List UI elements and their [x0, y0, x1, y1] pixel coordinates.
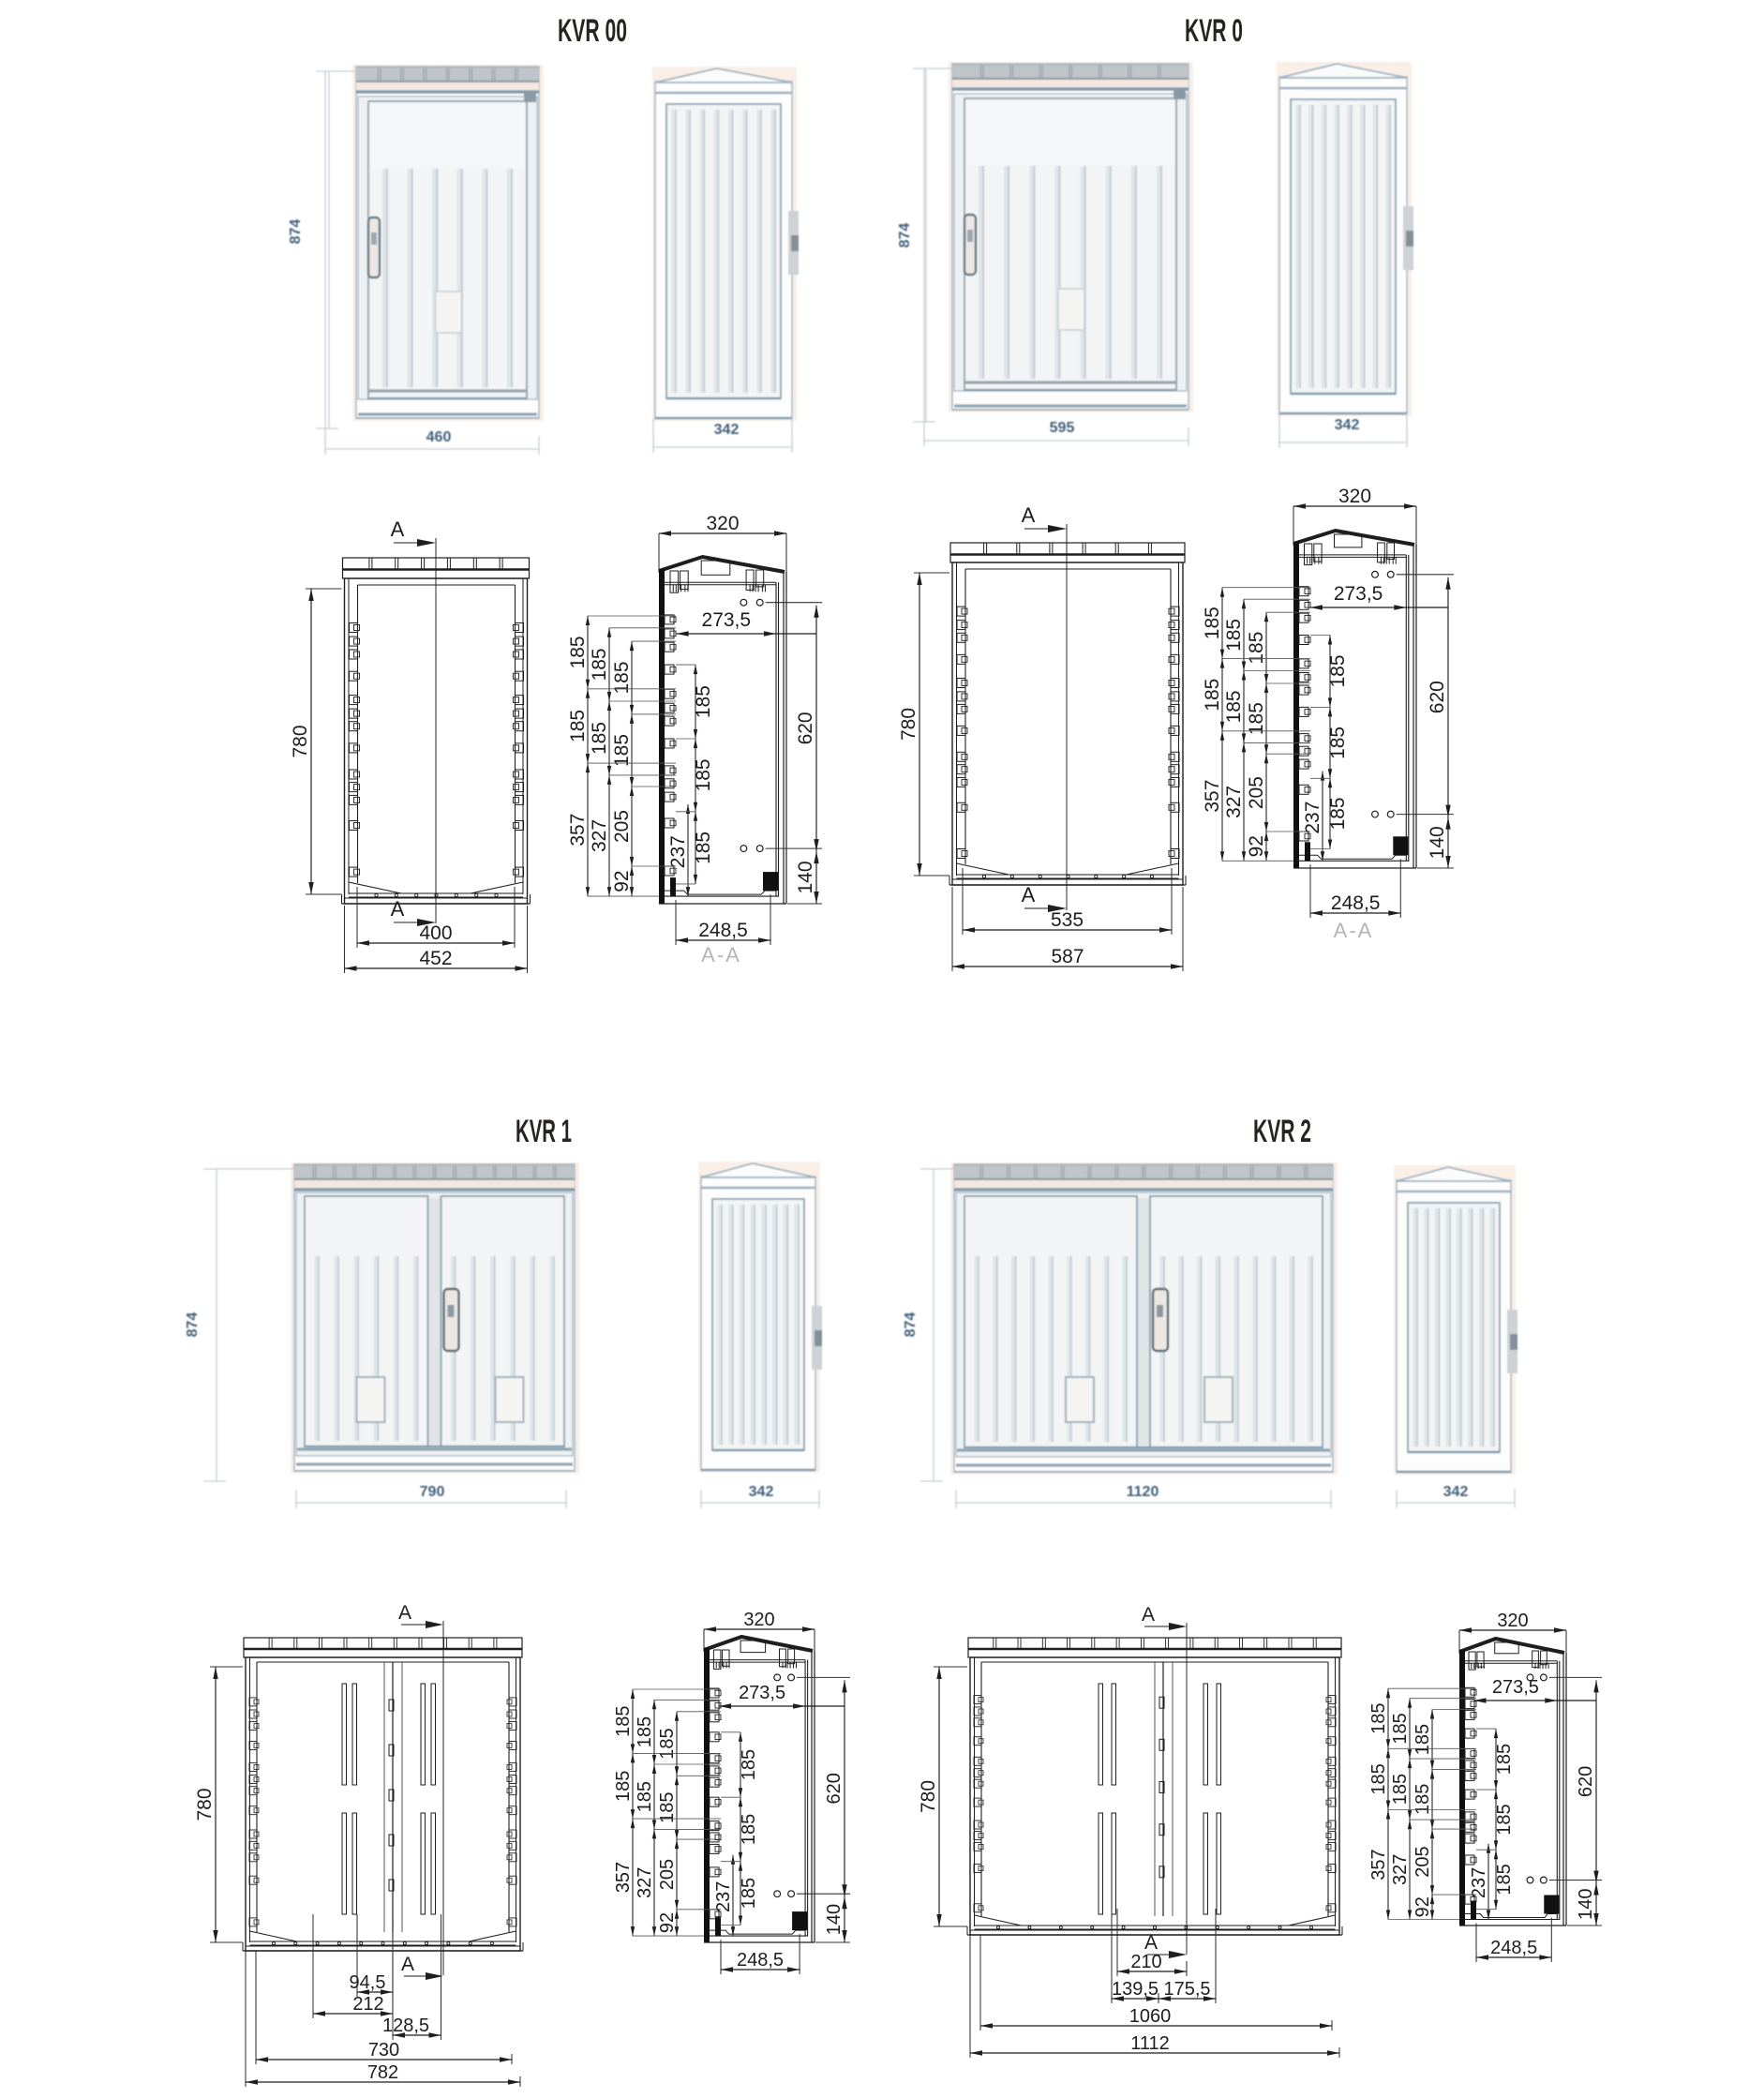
svg-text:A: A — [391, 517, 405, 541]
svg-text:185: 185 — [1494, 1744, 1515, 1775]
svg-text:185: 185 — [1327, 654, 1349, 687]
svg-text:342: 342 — [1335, 417, 1360, 433]
svg-text:730: 730 — [368, 2040, 399, 2061]
svg-text:780: 780 — [898, 708, 919, 741]
svg-text:92: 92 — [611, 870, 633, 892]
svg-text:185: 185 — [589, 648, 610, 681]
svg-text:210: 210 — [1130, 1952, 1161, 1972]
svg-text:790: 790 — [420, 1484, 445, 1500]
svg-text:248,5: 248,5 — [1331, 892, 1381, 914]
svg-text:139,5: 139,5 — [1112, 1979, 1159, 2000]
svg-text:140: 140 — [824, 1904, 845, 1935]
svg-text:874: 874 — [903, 1312, 919, 1338]
svg-text:185: 185 — [657, 1728, 678, 1759]
svg-text:874: 874 — [185, 1312, 201, 1338]
svg-text:595: 595 — [1050, 420, 1075, 436]
svg-text:400: 400 — [419, 922, 452, 944]
svg-text:185: 185 — [1390, 1713, 1411, 1744]
svg-text:205: 205 — [1246, 776, 1267, 809]
svg-text:185: 185 — [693, 685, 714, 718]
svg-text:620: 620 — [1576, 1766, 1596, 1797]
svg-text:237: 237 — [1469, 1867, 1489, 1898]
svg-text:874: 874 — [288, 219, 304, 245]
svg-text:320: 320 — [1338, 486, 1371, 507]
svg-text:273,5: 273,5 — [739, 1683, 785, 1703]
svg-text:140: 140 — [795, 861, 816, 893]
svg-text:185: 185 — [1327, 727, 1349, 759]
svg-text:320: 320 — [706, 513, 739, 534]
svg-text:237: 237 — [713, 1881, 734, 1912]
svg-text:248,5: 248,5 — [737, 1950, 784, 1971]
svg-text:185: 185 — [635, 1781, 655, 1812]
svg-text:327: 327 — [1223, 786, 1245, 818]
svg-text:185: 185 — [1368, 1703, 1389, 1734]
svg-text:185: 185 — [1246, 702, 1267, 735]
svg-text:A: A — [401, 1954, 414, 1975]
svg-text:1060: 1060 — [1129, 2006, 1172, 2027]
svg-text:92: 92 — [1413, 1896, 1433, 1917]
svg-text:185: 185 — [1202, 679, 1223, 712]
svg-text:320: 320 — [1497, 1611, 1528, 1631]
svg-text:535: 535 — [1051, 909, 1084, 931]
svg-text:273,5: 273,5 — [1334, 583, 1383, 605]
svg-text:874: 874 — [897, 223, 913, 248]
svg-text:185: 185 — [1368, 1763, 1389, 1794]
svg-text:273,5: 273,5 — [702, 609, 752, 631]
svg-text:A-A: A-A — [701, 943, 741, 967]
svg-text:342: 342 — [1443, 1484, 1469, 1500]
svg-text:140: 140 — [1427, 826, 1448, 859]
svg-text:237: 237 — [1302, 802, 1323, 834]
svg-text:273,5: 273,5 — [1492, 1677, 1539, 1698]
svg-text:185: 185 — [567, 636, 589, 668]
svg-text:342: 342 — [749, 1484, 774, 1500]
svg-text:357: 357 — [567, 814, 589, 847]
svg-text:A: A — [1022, 503, 1036, 527]
svg-text:185: 185 — [1494, 1804, 1515, 1835]
svg-text:A: A — [1022, 883, 1036, 907]
svg-text:92: 92 — [1246, 835, 1267, 857]
svg-text:237: 237 — [667, 835, 689, 868]
svg-text:185: 185 — [613, 1706, 634, 1737]
svg-text:1120: 1120 — [1127, 1484, 1159, 1500]
svg-text:205: 205 — [611, 810, 633, 843]
svg-text:620: 620 — [1427, 681, 1448, 713]
svg-text:185: 185 — [1223, 619, 1245, 652]
svg-text:342: 342 — [714, 422, 740, 438]
svg-text:185: 185 — [693, 758, 714, 791]
svg-text:587: 587 — [1051, 946, 1084, 967]
svg-text:357: 357 — [1202, 780, 1223, 813]
svg-text:128,5: 128,5 — [382, 2016, 429, 2036]
svg-text:780: 780 — [290, 725, 311, 757]
svg-text:1112: 1112 — [1130, 2033, 1170, 2054]
svg-text:185: 185 — [635, 1716, 655, 1747]
svg-text:620: 620 — [795, 712, 816, 744]
svg-text:357: 357 — [613, 1862, 634, 1893]
svg-text:KVR 1: KVR 1 — [516, 1114, 572, 1149]
svg-text:205: 205 — [657, 1859, 678, 1890]
svg-text:KVR 00: KVR 00 — [558, 13, 627, 49]
svg-text:248,5: 248,5 — [1490, 1938, 1537, 1958]
svg-text:452: 452 — [419, 948, 452, 969]
svg-text:205: 205 — [1413, 1846, 1433, 1877]
svg-text:327: 327 — [589, 819, 610, 852]
svg-text:185: 185 — [1390, 1774, 1411, 1805]
svg-text:KVR 2: KVR 2 — [1253, 1114, 1311, 1149]
svg-text:327: 327 — [635, 1867, 655, 1898]
svg-text:175,5: 175,5 — [1163, 1979, 1210, 2000]
svg-text:782: 782 — [367, 2062, 398, 2083]
svg-text:185: 185 — [613, 1771, 634, 1802]
svg-text:185: 185 — [739, 1814, 759, 1845]
svg-text:185: 185 — [1413, 1724, 1433, 1755]
svg-text:A-A: A-A — [1334, 919, 1374, 942]
svg-text:185: 185 — [589, 722, 610, 755]
svg-text:94,5: 94,5 — [350, 1972, 386, 1993]
svg-text:185: 185 — [1413, 1784, 1433, 1815]
svg-text:780: 780 — [918, 1780, 939, 1813]
svg-text:185: 185 — [1327, 797, 1349, 830]
svg-text:185: 185 — [1494, 1864, 1515, 1895]
svg-text:248,5: 248,5 — [698, 920, 748, 941]
svg-text:185: 185 — [739, 1878, 759, 1909]
svg-text:327: 327 — [1390, 1854, 1411, 1885]
svg-text:A: A — [391, 897, 405, 921]
svg-text:KVR 0: KVR 0 — [1185, 13, 1243, 49]
svg-text:92: 92 — [657, 1912, 678, 1933]
svg-text:A: A — [398, 1602, 411, 1624]
svg-text:620: 620 — [824, 1773, 845, 1804]
svg-text:780: 780 — [194, 1788, 216, 1821]
svg-text:320: 320 — [743, 1610, 774, 1630]
svg-text:A: A — [1142, 1604, 1155, 1626]
svg-text:185: 185 — [1202, 607, 1223, 639]
svg-text:140: 140 — [1576, 1889, 1596, 1920]
svg-text:212: 212 — [352, 1994, 383, 2015]
svg-text:185: 185 — [611, 661, 633, 694]
svg-text:185: 185 — [693, 832, 714, 864]
svg-text:460: 460 — [426, 429, 452, 445]
svg-text:357: 357 — [1368, 1849, 1389, 1880]
svg-text:185: 185 — [611, 734, 633, 767]
svg-text:A: A — [1144, 1932, 1158, 1954]
svg-text:185: 185 — [739, 1749, 759, 1780]
svg-text:185: 185 — [1223, 690, 1245, 723]
svg-text:185: 185 — [1246, 632, 1267, 665]
svg-text:185: 185 — [567, 710, 589, 742]
